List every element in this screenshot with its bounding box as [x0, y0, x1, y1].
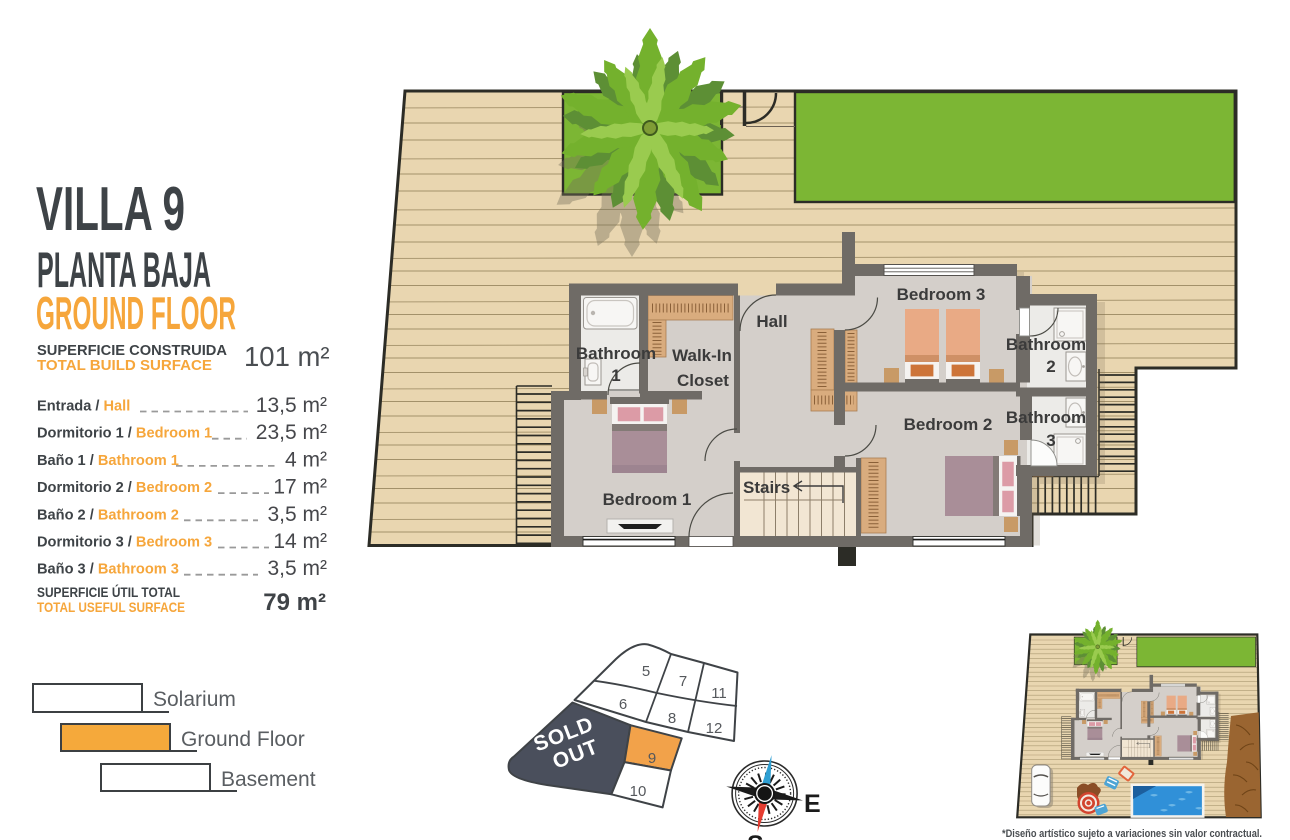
svg-text:Baño 2 / Bathroom 2: Baño 2 / Bathroom 2 [37, 507, 179, 523]
svg-text:23,5 m²: 23,5 m² [256, 421, 327, 444]
svg-text:E: E [804, 790, 821, 818]
svg-text:12: 12 [706, 720, 723, 737]
svg-text:Bathroom: Bathroom [1006, 335, 1086, 354]
svg-text:GROUND FLOOR: GROUND FLOOR [36, 287, 236, 339]
svg-text:Bedroom 1: Bedroom 1 [603, 490, 692, 509]
svg-text:Bedroom 3: Bedroom 3 [897, 285, 986, 304]
svg-text:Baño 1 / Bathroom 1: Baño 1 / Bathroom 1 [37, 453, 179, 469]
svg-text:6: 6 [619, 696, 627, 713]
svg-text:Dormitorio 2 / Bedroom 2: Dormitorio 2 / Bedroom 2 [37, 480, 212, 496]
svg-text:TOTAL USEFUL SURFACE: TOTAL USEFUL SURFACE [37, 600, 185, 615]
svg-text:Baño 3 / Bathroom 3: Baño 3 / Bathroom 3 [37, 562, 179, 578]
svg-text:S: S [747, 831, 764, 840]
svg-text:Basement: Basement [221, 768, 316, 791]
svg-text:17 m²: 17 m² [273, 476, 327, 499]
svg-text:Stairs: Stairs [743, 478, 790, 497]
svg-text:1: 1 [611, 366, 620, 385]
svg-text:8: 8 [668, 710, 676, 727]
svg-text:Hall: Hall [756, 312, 787, 331]
svg-text:Dormitorio 3 / Bedroom 3: Dormitorio 3 / Bedroom 3 [37, 535, 212, 551]
svg-text:Dormitorio 1 / Bedroom 1: Dormitorio 1 / Bedroom 1 [37, 426, 212, 442]
svg-text:9: 9 [648, 750, 656, 767]
svg-text:VILLA 9: VILLA 9 [36, 175, 185, 244]
svg-text:Bedroom 2: Bedroom 2 [904, 415, 993, 434]
svg-text:3,5 m²: 3,5 m² [267, 503, 327, 526]
svg-text:11: 11 [711, 685, 727, 702]
svg-text:Bathroom: Bathroom [1006, 408, 1086, 427]
svg-text:Ground Floor: Ground Floor [181, 728, 305, 751]
svg-text:10: 10 [630, 783, 647, 800]
svg-text:7: 7 [679, 673, 687, 690]
svg-text:Bathroom: Bathroom [576, 344, 656, 363]
svg-text:Entrada / Hall: Entrada / Hall [37, 399, 130, 415]
svg-text:2: 2 [1046, 357, 1055, 376]
svg-text:TOTAL BUILD SURFACE: TOTAL BUILD SURFACE [37, 358, 212, 374]
svg-text:4 m²: 4 m² [285, 448, 327, 471]
svg-text:79 m²: 79 m² [263, 589, 326, 616]
svg-text:13,5 m²: 13,5 m² [256, 394, 327, 417]
svg-text:14 m²: 14 m² [273, 530, 327, 553]
svg-text:Walk-In: Walk-In [672, 346, 732, 365]
svg-text:101 m²: 101 m² [244, 341, 330, 372]
svg-text:Closet: Closet [677, 371, 729, 390]
svg-text:Solarium: Solarium [153, 688, 236, 711]
svg-text:*Diseño artístico sujeto a var: *Diseño artístico sujeto a variaciones s… [1002, 828, 1262, 840]
svg-text:3,5 m²: 3,5 m² [267, 557, 327, 580]
svg-text:SUPERFICIE ÚTIL TOTAL: SUPERFICIE ÚTIL TOTAL [37, 585, 180, 600]
svg-text:3: 3 [1046, 431, 1055, 450]
svg-text:5: 5 [642, 663, 650, 680]
svg-text:SUPERFICIE CONSTRUIDA: SUPERFICIE CONSTRUIDA [37, 343, 228, 359]
